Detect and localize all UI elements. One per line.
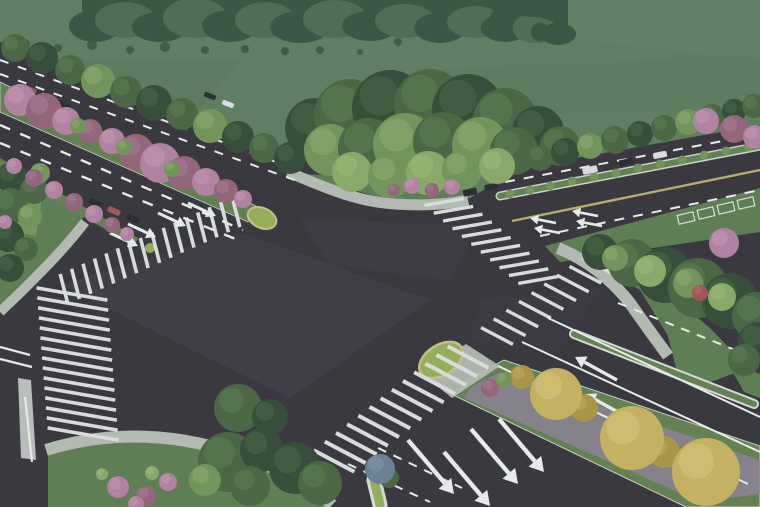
- intersection-aerial-rendering: [0, 0, 760, 507]
- photo-haze: [0, 0, 760, 507]
- rendering-photo: [0, 0, 760, 507]
- haze-overlay: [0, 0, 760, 507]
